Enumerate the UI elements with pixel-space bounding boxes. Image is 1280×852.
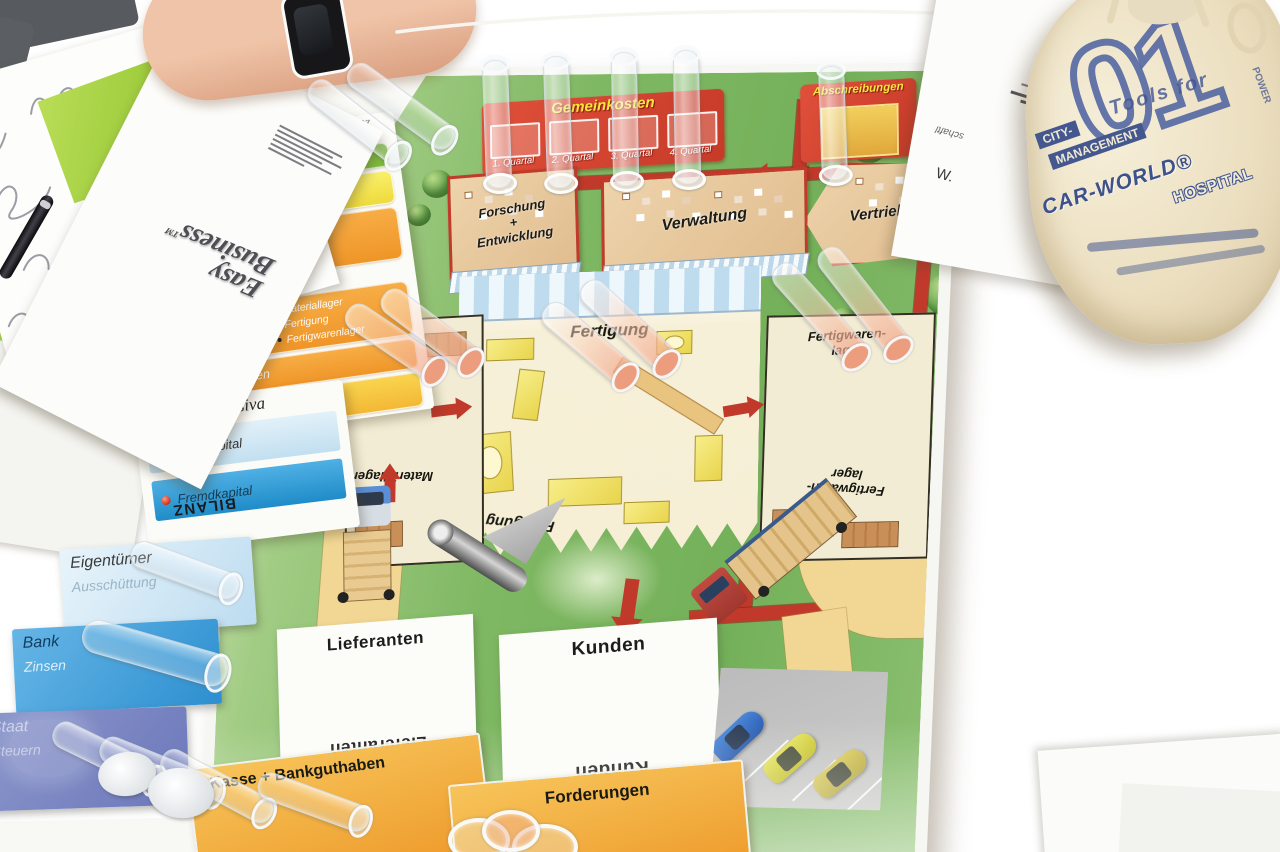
test-tube-standing <box>611 52 639 186</box>
steuern-label: Steuern <box>0 742 41 760</box>
office-desks <box>464 191 472 199</box>
bag-prints: 01 Tools for CITY- MANAGEMENT CAR-WORLD®… <box>1004 0 1280 355</box>
bullet-dot-icon <box>277 338 282 343</box>
bag-power-text: POWER <box>1249 66 1272 105</box>
abschreibungen-title: Abschreibungen <box>800 80 916 99</box>
customer-car-yellow <box>760 728 821 786</box>
parking-line <box>744 739 789 781</box>
building-label: Forschung + Entwicklung <box>449 192 577 255</box>
abschreibungen-panel: Abschreibungen <box>800 78 917 163</box>
red-dot-icon <box>161 495 171 505</box>
bank-label: Bank <box>22 633 59 653</box>
customer-van <box>810 744 872 802</box>
photo-scene: Gemeinkosten 1. Quartal 2. Quartal 3. Qu… <box>0 0 1280 852</box>
booklet-small-print <box>254 122 348 210</box>
test-tube-standing <box>818 66 848 181</box>
paper-bottom-right <box>1118 783 1280 852</box>
crates <box>841 521 899 548</box>
test-tube-rim <box>482 810 540 852</box>
test-tube-standing <box>543 56 574 189</box>
parking-line <box>792 759 837 801</box>
parking-line <box>838 777 883 819</box>
ausschuettung-label: Ausschüttung <box>71 573 157 595</box>
staat-label: Staat <box>0 718 29 737</box>
lieferanten-label: Lieferanten <box>277 624 474 660</box>
office-desks <box>714 191 722 198</box>
building-label: Verwaltung <box>604 196 805 244</box>
bush <box>406 204 431 226</box>
test-tube-standing <box>673 50 701 184</box>
zinsen-label: Zinsen <box>23 657 66 675</box>
test-tube-standing <box>482 60 512 189</box>
label-line: lager <box>831 466 863 483</box>
bag-scribble <box>1116 244 1265 275</box>
machine <box>623 501 669 525</box>
office-desks <box>622 193 630 200</box>
machine <box>486 338 534 362</box>
text-fragment: schaftl <box>934 123 965 142</box>
machine <box>694 435 723 482</box>
truck-wheel <box>384 589 395 601</box>
easy-business-logo: Easy BusinessTM <box>96 194 278 301</box>
office-desks <box>855 178 863 185</box>
forderungen-label: Forderungen <box>544 780 650 808</box>
text-fragment: W. <box>934 165 956 186</box>
kunden-label: Kunden <box>499 628 718 667</box>
machine <box>512 369 545 421</box>
customer-car-blue <box>708 706 769 765</box>
cloth-game-bag: 01 Tools for CITY- MANAGEMENT CAR-WORLD®… <box>1018 0 1280 351</box>
